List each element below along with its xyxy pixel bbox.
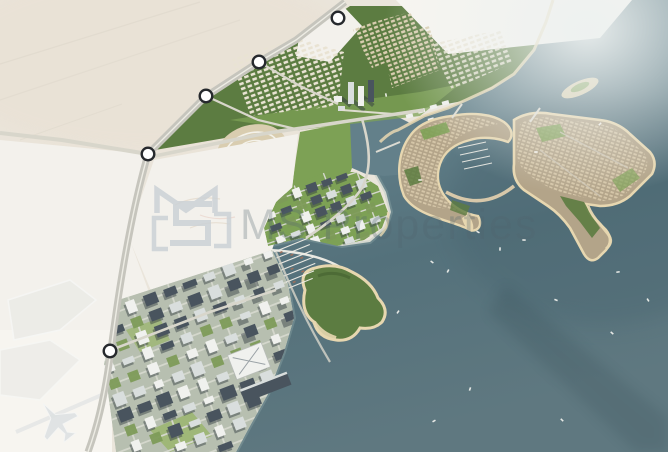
interchange-circle-marker [104,345,117,358]
boat-dot [534,151,537,153]
interchange-circle-marker [253,56,266,69]
aerial-render-canvas: MS Properties [0,0,668,452]
interchange-circle-marker [142,148,155,161]
watermark-brand-text: MS Properties [240,201,538,249]
interchange-circle-marker [332,12,345,25]
interchange-circle-marker [200,90,213,103]
sea-haze [300,0,668,300]
boat-dot [418,179,421,181]
masterplan-aerial-render: MS Properties [0,0,668,452]
